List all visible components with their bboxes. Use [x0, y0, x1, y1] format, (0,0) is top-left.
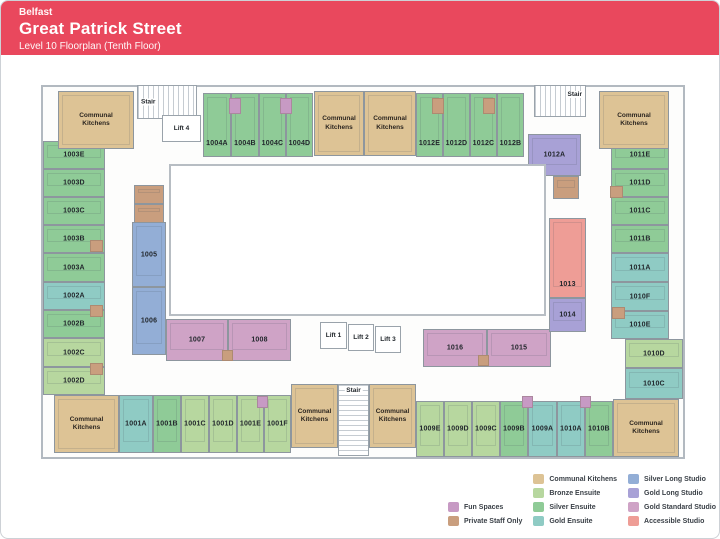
legend-label: Gold Long Studio	[644, 490, 703, 497]
room-1009a[interactable]: 1009A	[528, 401, 557, 457]
legend-item: Silver Long Studio	[628, 474, 716, 484]
room-1015[interactable]: 1015	[487, 329, 551, 367]
room-1009b[interactable]: 1009B	[500, 401, 528, 457]
legend-swatch-gold_long	[628, 488, 639, 498]
room-1001b[interactable]: 1001B	[153, 395, 181, 453]
room-communal-kitchen: Communal Kitchens	[314, 91, 364, 156]
kitchen-label: Communal Kitchens	[373, 115, 407, 131]
room-1003d[interactable]: 1003D	[43, 169, 105, 197]
room-label: 1001C	[182, 421, 208, 428]
legend-item: Gold Standard Studio	[628, 502, 716, 512]
room-label: 1004B	[232, 140, 258, 147]
room-communal-kitchen: Communal Kitchens	[54, 395, 119, 453]
legend-item: Bronze Ensuite	[533, 488, 617, 498]
room-label: 1003C	[44, 208, 104, 215]
legend-swatch-gold	[533, 516, 544, 526]
room-1010d[interactable]: 1010D	[625, 339, 683, 368]
room-label: 1001A	[120, 421, 152, 428]
staff-area-marker	[432, 98, 444, 114]
legend-label: Fun Spaces	[464, 504, 503, 511]
room-1010c[interactable]: 1010C	[625, 368, 683, 399]
room-label: 1012E	[417, 140, 442, 147]
room-label: 1010E	[612, 322, 668, 329]
room-label: 1012C	[471, 140, 496, 147]
legend-item: Private Staff Only	[448, 516, 522, 526]
room-label: 1001D	[210, 421, 236, 428]
room-1010b[interactable]: 1010B	[585, 401, 613, 457]
room-label: 1009C	[473, 426, 499, 433]
room-label: 1012A	[529, 152, 580, 159]
stair: Stair	[534, 85, 586, 117]
legend-label: Silver Long Studio	[644, 476, 706, 483]
room-label: 1013	[550, 281, 585, 288]
room-1001a[interactable]: 1001A	[119, 395, 153, 453]
room-label: 1002B	[44, 321, 104, 328]
staff-area-marker	[478, 355, 489, 366]
lift-4: Lift 4	[162, 115, 201, 142]
legend: Fun SpacesPrivate Staff OnlyCommunal Kit…	[448, 474, 716, 526]
legend-swatch-fun	[448, 502, 459, 512]
room-label: 1012B	[498, 140, 523, 147]
room-label: 1004C	[260, 140, 285, 147]
legend-column: Fun SpacesPrivate Staff Only	[448, 502, 522, 526]
staff-area-marker	[90, 240, 103, 252]
room-private-staff	[134, 185, 164, 204]
room-label: 1004A	[204, 140, 230, 147]
room-1009e[interactable]: 1009E	[416, 401, 444, 457]
legend-swatch-bronze	[533, 488, 544, 498]
page-title: Great Patrick Street	[19, 19, 719, 39]
room-label: 1009E	[417, 426, 443, 433]
room-label: 1009B	[501, 426, 527, 433]
room-1012b[interactable]: 1012B	[497, 93, 524, 157]
lift-2: Lift 2	[348, 324, 374, 351]
room-label: 1006	[133, 318, 165, 325]
staff-area-marker	[222, 350, 233, 361]
header: Belfast Great Patrick Street Level 10 Fl…	[1, 1, 719, 55]
legend-item: Silver Ensuite	[533, 502, 617, 512]
legend-swatch-silver	[533, 502, 544, 512]
legend-label: Private Staff Only	[464, 518, 522, 525]
room-label: 1002A	[44, 293, 104, 300]
room-1001f[interactable]: 1001F	[264, 395, 291, 453]
room-label: 1003E	[44, 152, 104, 159]
stair-label: Stair	[139, 99, 157, 106]
legend-item: Communal Kitchens	[533, 474, 617, 484]
kitchen-label: Communal Kitchens	[79, 112, 113, 128]
room-label: 1010F	[612, 293, 668, 300]
legend-column: Silver Long StudioGold Long StudioGold S…	[628, 474, 716, 526]
room-label: 1005	[133, 251, 165, 258]
stair-label: Stair	[566, 91, 584, 98]
legend-label: Gold Ensuite	[549, 518, 592, 525]
room-label: 1009A	[529, 426, 556, 433]
room-communal-kitchen: Communal Kitchens	[291, 384, 338, 448]
room-1011a[interactable]: 1011A	[611, 253, 669, 282]
room-label: 1001B	[154, 421, 180, 428]
legend-label: Silver Ensuite	[549, 504, 595, 511]
legend-label: Accessible Studio	[644, 518, 704, 525]
room-communal-kitchen: Communal Kitchens	[369, 384, 416, 448]
room-1013[interactable]: 1013	[549, 218, 586, 298]
room-1003c[interactable]: 1003C	[43, 197, 105, 225]
floorplan-page: Belfast Great Patrick Street Level 10 Fl…	[0, 0, 720, 539]
staff-area-marker	[610, 186, 623, 198]
staff-area-marker	[483, 98, 495, 114]
stair: Stair	[137, 85, 197, 119]
room-label: 1011C	[612, 208, 668, 215]
staff-area-marker	[612, 307, 625, 319]
header-city: Belfast	[19, 7, 719, 18]
room-label: 1003D	[44, 180, 104, 187]
room-1008[interactable]: 1008	[228, 319, 291, 361]
kitchen-label: Communal Kitchens	[298, 408, 332, 424]
staff-area-marker	[90, 363, 103, 375]
stair-label: Stair	[344, 387, 362, 394]
legend-column: Communal KitchensBronze EnsuiteSilver En…	[533, 474, 617, 526]
legend-item: Gold Ensuite	[533, 516, 617, 526]
room-1009d[interactable]: 1009D	[444, 401, 472, 457]
room-label: 1010D	[626, 350, 682, 357]
room-label: 1010B	[586, 426, 612, 433]
room-1001c[interactable]: 1001C	[181, 395, 209, 453]
fun-space-marker	[280, 98, 292, 114]
room-private-staff	[134, 204, 164, 223]
room-label: 1002C	[44, 349, 104, 356]
legend-item: Accessible Studio	[628, 516, 716, 526]
fun-space-marker	[580, 396, 591, 408]
page-subtitle: Level 10 Floorplan (Tenth Floor)	[19, 41, 719, 52]
legend-label: Bronze Ensuite	[549, 490, 600, 497]
legend-swatch-kitchen	[533, 474, 544, 484]
room-1009c[interactable]: 1009C	[472, 401, 500, 457]
room-label: 1007	[167, 337, 227, 344]
room-1005[interactable]: 1005	[132, 222, 166, 287]
room-label: 1001F	[265, 421, 290, 428]
room-1007[interactable]: 1007	[166, 319, 228, 361]
room-label: 1002D	[44, 378, 104, 385]
stair: Stair	[338, 384, 369, 456]
room-1010a[interactable]: 1010A	[557, 401, 585, 457]
fun-space-marker	[522, 396, 533, 408]
legend-item: Gold Long Studio	[628, 488, 716, 498]
room-label: 1004D	[287, 140, 312, 147]
room-label: 1003A	[44, 264, 104, 271]
room-communal-kitchen: Communal Kitchens	[613, 399, 679, 457]
lift-3: Lift 3	[375, 326, 401, 353]
room-communal-kitchen: Communal Kitchens	[58, 91, 134, 149]
room-label: 1008	[229, 337, 290, 344]
legend-label: Communal Kitchens	[549, 476, 617, 483]
room-label: 1010C	[626, 380, 682, 387]
room-label: 1011B	[612, 236, 668, 243]
room-label: 1016	[424, 345, 486, 352]
kitchen-label: Communal Kitchens	[376, 408, 410, 424]
room-1011c[interactable]: 1011C	[611, 197, 669, 225]
legend-item: Fun Spaces	[448, 502, 522, 512]
kitchen-label: Communal Kitchens	[617, 112, 651, 128]
room-label: 1014	[550, 312, 585, 319]
room-1001d[interactable]: 1001D	[209, 395, 237, 453]
room-label: 1011E	[612, 152, 668, 159]
room-private-staff	[553, 176, 579, 199]
room-label: 1012D	[444, 140, 469, 147]
legend-swatch-gold_standard	[628, 502, 639, 512]
room-1014[interactable]: 1014	[549, 298, 586, 332]
room-label: 1010A	[558, 426, 584, 433]
room-label: 1009D	[445, 426, 471, 433]
room-1006[interactable]: 1006	[132, 287, 166, 355]
lift-1: Lift 1	[320, 322, 347, 349]
room-1003a[interactable]: 1003A	[43, 253, 105, 282]
legend-swatch-accessible	[628, 516, 639, 526]
room-label: 1011A	[612, 264, 668, 271]
room-communal-kitchen: Communal Kitchens	[364, 91, 416, 156]
room-communal-kitchen: Communal Kitchens	[599, 91, 669, 149]
kitchen-label: Communal Kitchens	[629, 420, 663, 436]
room-label: 1001E	[238, 421, 263, 428]
legend-label: Gold Standard Studio	[644, 504, 716, 511]
fun-space-marker	[229, 98, 241, 114]
room-label: 1015	[488, 345, 550, 352]
kitchen-label: Communal Kitchens	[70, 416, 104, 432]
staff-area-marker	[90, 305, 103, 317]
fun-space-marker	[257, 396, 268, 408]
room-1004a[interactable]: 1004A	[203, 93, 231, 157]
room-1011b[interactable]: 1011B	[611, 225, 669, 253]
courtyard	[169, 164, 546, 316]
legend-swatch-staff	[448, 516, 459, 526]
room-1012d[interactable]: 1012D	[443, 93, 470, 157]
kitchen-label: Communal Kitchens	[322, 115, 356, 131]
legend-swatch-silver_long	[628, 474, 639, 484]
